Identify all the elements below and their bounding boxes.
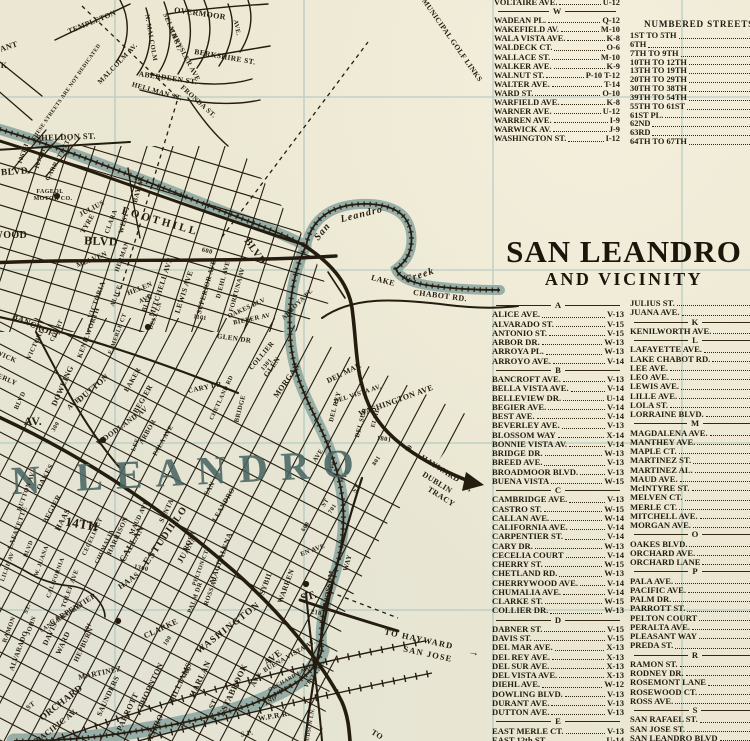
map-label: LEWIS AVE <box>174 270 195 315</box>
index-row: MORGAN AVE. <box>630 521 750 530</box>
map-label: SYBIL <box>258 570 273 596</box>
map-label: AVE <box>249 670 263 688</box>
map-label: CHABOT RD. <box>413 289 468 304</box>
map-label: BERKSHIRE ST. <box>194 48 257 66</box>
map-label: THESE STREETS ARE NOT DEDICATED <box>31 44 102 143</box>
map-label: 801 <box>372 455 382 467</box>
map-label: 2101 <box>310 610 326 619</box>
map-label: 701 <box>328 503 338 515</box>
map-label: 300 <box>51 421 61 433</box>
map-label: RAMON <box>2 616 17 644</box>
map-label: WARD <box>54 630 71 655</box>
index-row: 64TH TO 67TH <box>630 138 750 147</box>
index-row: WARREN AVE.I-9 <box>494 116 620 125</box>
index-row: WARD ST.O-10 <box>494 89 620 98</box>
map-label: 100 <box>163 635 174 647</box>
map-label: ST. <box>300 590 319 605</box>
map-label: ROSS AV. <box>204 575 221 606</box>
map-label: ARBOR <box>138 418 158 445</box>
map-label: BLVD <box>241 237 267 267</box>
map-label: FOOTHILL <box>120 206 199 238</box>
map-label: K <box>1 62 8 70</box>
numbered-streets-header: NUMBERED STREETS <box>644 19 750 29</box>
map-label: WAY <box>342 554 353 572</box>
map-label: CALIFORNIA <box>46 557 66 599</box>
map-canvas: TEMPLETONOVERMOORSELMA ST.CHRYSLER AVEBE… <box>0 0 750 741</box>
index-row: LORRAINE BLVD. <box>630 410 750 419</box>
map-label: LAKE <box>370 274 396 288</box>
map-label: 2ND <box>264 695 278 707</box>
map-label: BRIDGE <box>234 395 248 424</box>
map-label: ERLY <box>0 373 18 388</box>
map-label: DEL SUR <box>355 407 369 438</box>
map-label: Creek <box>404 267 436 286</box>
map-label: N. MALCOLM <box>143 14 158 62</box>
map-label: FAGEOL <box>36 189 63 195</box>
map-label: DUTTON <box>75 372 110 403</box>
map-label: WICK <box>0 349 17 364</box>
map-label: SAN LEANDRO <box>39 604 83 634</box>
index-row: WALTER AVE.T-14 <box>494 80 620 89</box>
map-label: DEL REY <box>329 391 343 423</box>
map-label: BAKER <box>123 367 143 394</box>
map-label: EN AVE <box>300 544 326 559</box>
map-label: THORNTON <box>137 662 165 710</box>
index-row: VOLTAIRE AVE.U-12 <box>494 0 620 7</box>
map-title: SAN LEANDRO AND VICINITY <box>498 236 750 290</box>
map-label: PALM DR <box>187 582 204 615</box>
map-label: LAFAYETTE <box>7 506 29 551</box>
index-row: JUANA AVE. <box>630 308 750 317</box>
map-label: FRONDA ST. <box>179 84 217 119</box>
index-row: KENILWORTH AVE. <box>630 327 750 336</box>
index-row: ROSS AVE. <box>630 697 750 706</box>
map-label: BAY AV. <box>132 175 146 204</box>
map-label: ST <box>25 700 37 711</box>
map-label: WARREN <box>276 568 295 604</box>
index-row: WAKEFIELD AV.M-10 <box>494 25 620 34</box>
map-label: E. MERLE CT <box>108 313 128 356</box>
map-label: WOOD <box>0 231 27 241</box>
index-row: WALDECK CT.O-6 <box>494 43 620 52</box>
index-row: WALLACE ST.M-10 <box>494 53 620 62</box>
map-label: 1801 <box>376 436 391 444</box>
index-row: WALNUT ST.P-10 T-12 <box>494 71 620 80</box>
map-label: GARRETT ST. <box>45 138 73 183</box>
map-label: AVE. <box>231 19 241 36</box>
map-label: GLEN DR <box>216 333 251 345</box>
map-label: W. JUANA <box>34 545 51 577</box>
map-label: TO <box>370 728 385 741</box>
map-label: 600 <box>301 521 311 533</box>
map-label: CLARKE <box>143 618 180 641</box>
map-label: BLVD <box>23 540 35 559</box>
map-label: ST. <box>24 603 33 614</box>
index-row: SAN LEANDRO BLVD <box>630 734 750 741</box>
map-label: MALCOLM AV. <box>97 42 140 86</box>
map-label: HEPBURN <box>73 627 95 664</box>
map-label: LEE <box>131 438 141 452</box>
map-label: HELLMAN ST. <box>131 81 183 102</box>
map-label: OVERMOOR <box>174 6 227 21</box>
map-label: DEL MAR <box>325 361 362 384</box>
map-label: MOTOR CO. <box>34 196 73 202</box>
index-row: 1ST TO 5TH <box>630 32 750 41</box>
index-row: WALA VISTA AVE.K-8 <box>494 34 620 43</box>
map-label: ANT <box>0 40 19 53</box>
index-row: WASHINGTON ST.I-12 <box>494 134 620 143</box>
index-section-w: W <box>494 7 620 16</box>
map-label: 107TH <box>34 148 47 170</box>
map-label: HAAS <box>117 571 141 591</box>
index-row: WALKER AVE.K-9 <box>494 62 620 71</box>
map-label: BLOSSOM <box>322 570 335 608</box>
map-label: BLVD <box>14 391 28 411</box>
street-index-a-e: AALICE AVE.V-13ALVARADO ST.V-15ANTONIO S… <box>492 301 624 741</box>
map-label: MELVEN <box>76 251 109 270</box>
map-label: WASHINGTON <box>195 601 263 657</box>
map-label: VICTORIA <box>26 325 47 361</box>
index-row: WARNER AVE.U-12 <box>494 107 620 116</box>
index-row: WARWICK AV.J-9 <box>494 125 620 134</box>
map-label: LILLE AV <box>0 552 16 583</box>
map-label: CASTRO <box>143 713 165 741</box>
map-label: → <box>467 646 480 659</box>
map-label: CARY DR <box>187 381 222 395</box>
map-label: BLVD. <box>1 167 31 179</box>
map-label: ALICE <box>110 284 124 307</box>
index-row: ORCHARD LANE <box>630 558 750 567</box>
map-label: S.P. <box>240 729 254 738</box>
map-label: ALVARADO <box>9 630 30 672</box>
map-label: → <box>460 481 475 496</box>
map-label: ST <box>207 698 218 710</box>
map-title-line1: SAN LEANDRO <box>498 236 750 269</box>
map-label: JUANA <box>176 534 199 565</box>
map-label: Leandro <box>340 205 385 225</box>
index-row: EAST 12th ST.U-14 <box>492 736 624 741</box>
map-label: TEMPLETON <box>67 9 117 35</box>
street-index-w: VOLTAIRE AVE.U-12WWADEAN PL.Q-12WAKEFIEL… <box>494 0 620 144</box>
map-label: PARROTT <box>116 692 141 733</box>
map-label: SAUNDERS <box>95 675 120 718</box>
map-label: 1101 <box>193 314 207 322</box>
map-label: BLVD <box>84 234 118 247</box>
map-label: ARROYA PL <box>281 288 315 322</box>
street-index-j-s: JULIUS ST.JUANA AVE.KKENILWORTH AVE.LLAF… <box>630 299 750 741</box>
index-row: PREDA ST. <box>630 641 750 650</box>
map-label: SUPERIOR AVE <box>196 259 218 315</box>
map-label: 600 <box>201 248 213 257</box>
street-index-numbered: NUMBERED STREETS 1ST TO 5TH6TH7TH TO 9TH… <box>630 0 750 147</box>
map-label: DIEHL AVE <box>216 261 232 300</box>
index-row: WADEAN PL.Q-12 <box>494 16 620 25</box>
map-label: ESTABROOK <box>217 662 249 717</box>
map-title-line2: AND VICINITY <box>498 269 750 291</box>
map-label: W.P.R.R. <box>257 710 290 723</box>
index-row: WARFIELD AVE.K-8 <box>494 98 620 107</box>
map-label: 106TH <box>17 143 30 165</box>
map-label: AV. <box>24 415 42 427</box>
map-label: MORGAN <box>272 362 301 399</box>
map-label: San <box>313 221 333 243</box>
map-label: OAKS MUNICIPAL GOLF LINKS <box>406 0 483 83</box>
map-label: AVE <box>66 396 82 411</box>
map-label: 70 <box>405 444 414 454</box>
map-label: HUDSON LN. <box>305 708 317 741</box>
